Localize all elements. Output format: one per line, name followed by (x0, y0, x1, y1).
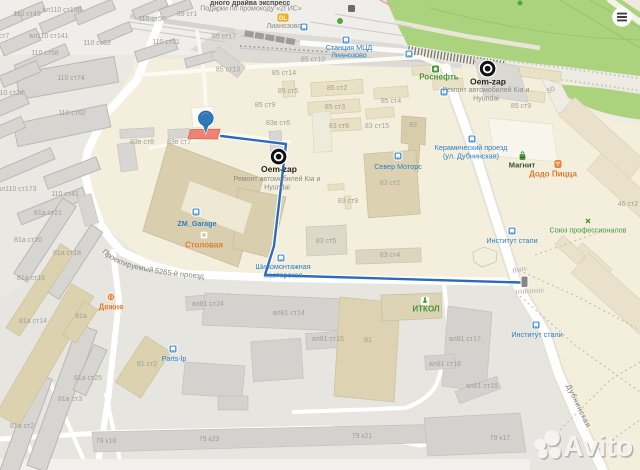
svg-text:83 ст5: 83 ст5 (316, 238, 336, 245)
svg-text:Дежне: Дежне (98, 303, 124, 312)
svg-text:110 ст24: 110 ст24 (0, 90, 24, 97)
svg-text:83: 83 (409, 122, 417, 129)
svg-text:Parts-lp: Parts-lp (162, 354, 187, 363)
svg-text:110 ст74: 110 ст74 (57, 75, 85, 82)
svg-text:81 ст2: 81 ст2 (137, 361, 157, 368)
svg-text:81а ст21: 81а ст21 (34, 210, 62, 217)
svg-text:Oem-zap: Oem-zap (470, 77, 506, 87)
svg-text:110 ст62: 110 ст62 (58, 110, 86, 117)
svg-text:ст7: ст7 (0, 33, 9, 40)
svg-text:Роснефть: Роснефть (419, 73, 458, 82)
svg-text:85 ст4: 85 ст4 (381, 98, 401, 105)
svg-text:Магнит: Магнит (509, 161, 536, 170)
svg-text:81: 81 (364, 337, 372, 344)
svg-text:83 ст9: 83 ст9 (338, 198, 358, 205)
svg-text:Союз профессионалов: Союз профессионалов (550, 226, 627, 235)
svg-text:Ремонт автомобилей Kia и: Ремонт автомобилей Kia и (234, 175, 321, 183)
svg-text:Институт стали: Институт стали (511, 330, 562, 339)
svg-text:85 ст3: 85 ст3 (325, 104, 345, 111)
svg-text:ИТКОЛ: ИТКОЛ (412, 305, 440, 314)
svg-text:85 ст10: 85 ст10 (301, 57, 325, 64)
svg-text:46 ст2: 46 ст2 (618, 201, 638, 208)
svg-text:вл110 ст173: вл110 ст173 (0, 186, 37, 193)
svg-text:81а ст18: 81а ст18 (53, 250, 81, 257)
svg-text:81а ст3: 81а ст3 (58, 396, 82, 403)
svg-text:110 ст51: 110 ст51 (152, 39, 180, 46)
svg-text:ZM_Garage: ZM_Garage (177, 219, 216, 228)
svg-text:83в ст8: 83в ст8 (130, 139, 154, 146)
svg-text:89 ст1: 89 ст1 (177, 11, 197, 18)
svg-text:вл81 ст17: вл81 ст17 (449, 336, 481, 343)
svg-text:Институт стали: Институт стали (486, 236, 537, 245)
svg-text:110 ст41: 110 ст41 (51, 191, 79, 198)
svg-text:Oem-zap: Oem-zap (261, 164, 297, 174)
svg-text:вл110 ст136: вл110 ст136 (42, 7, 81, 14)
svg-text:вл81 ст24: вл81 ст24 (192, 301, 224, 308)
svg-text:110 ст49: 110 ст49 (13, 11, 41, 18)
svg-text:81а ст20: 81а ст20 (14, 237, 42, 244)
svg-text:83 ст15: 83 ст15 (365, 123, 389, 130)
svg-text:85 ст9: 85 ст9 (255, 102, 275, 109)
svg-text:Лианозово: Лианозово (331, 51, 367, 60)
svg-text:вл81 ст19: вл81 ст19 (466, 383, 498, 390)
svg-text:83 ст2: 83 ст2 (380, 180, 400, 187)
svg-text:110 ст58: 110 ст58 (31, 50, 59, 57)
svg-text:вл81 ст14: вл81 ст14 (273, 310, 305, 317)
svg-text:85 ст5: 85 ст5 (278, 88, 298, 95)
svg-text:Avito: Avito (563, 431, 633, 463)
svg-text:Ремонт автомобилей Kia и: Ремонт автомобилей Kia и (443, 86, 530, 94)
svg-text:вл81 ст15: вл81 ст15 (312, 336, 344, 343)
svg-text:81а ст16: 81а ст16 (17, 275, 45, 282)
svg-text:Hyundai: Hyundai (264, 185, 290, 192)
svg-text:83 ст4: 83 ст4 (380, 252, 400, 259)
svg-text:79 к21: 79 к21 (352, 433, 373, 440)
svg-text:81а ст2: 81а ст2 (10, 423, 34, 430)
svg-text:вл81 ст18: вл81 ст18 (429, 361, 461, 368)
svg-text:85 ст14: 85 ст14 (272, 70, 296, 77)
svg-text:мастерская: мастерская (264, 271, 303, 280)
svg-text:81а ст25: 81а ст25 (74, 375, 102, 382)
svg-text:Лианозово: Лианозово (267, 23, 302, 30)
svg-text:Додо Пицца: Додо Пицца (529, 170, 577, 179)
svg-text:(ул. Дубнинская): (ул. Дубнинская) (443, 152, 499, 161)
svg-text:79 к23: 79 к23 (199, 436, 220, 443)
svg-text:81а: 81а (75, 313, 87, 320)
svg-text:83в ст7: 83в ст7 (167, 139, 191, 146)
svg-text:85 ст13: 85 ст13 (216, 67, 240, 74)
svg-text:81а ст14: 81а ст14 (19, 318, 47, 325)
svg-text:вл110 ст141: вл110 ст141 (29, 33, 68, 40)
svg-text:110 ст50: 110 ст50 (138, 16, 166, 23)
svg-text:Север Моторс: Север Моторс (374, 162, 422, 171)
svg-text:Столовая: Столовая (185, 241, 223, 250)
svg-text:85 ст9: 85 ст9 (511, 103, 531, 110)
svg-text:83 ст6: 83 ст6 (329, 123, 349, 130)
svg-text:85 ст2: 85 ст2 (327, 85, 347, 92)
svg-text:Подарки по промокоду «2ГИС»: Подарки по промокоду «2ГИС» (200, 6, 302, 13)
svg-text:85 ст17: 85 ст17 (212, 34, 236, 41)
svg-text:79 к17: 79 к17 (490, 435, 511, 442)
svg-text:DL: DL (279, 16, 287, 22)
svg-text:Hyundai: Hyundai (473, 96, 499, 103)
svg-text:110 ст63: 110 ст63 (83, 40, 111, 47)
svg-text:79 к18: 79 к18 (96, 438, 117, 445)
svg-text:83в ст6: 83в ст6 (266, 120, 290, 127)
